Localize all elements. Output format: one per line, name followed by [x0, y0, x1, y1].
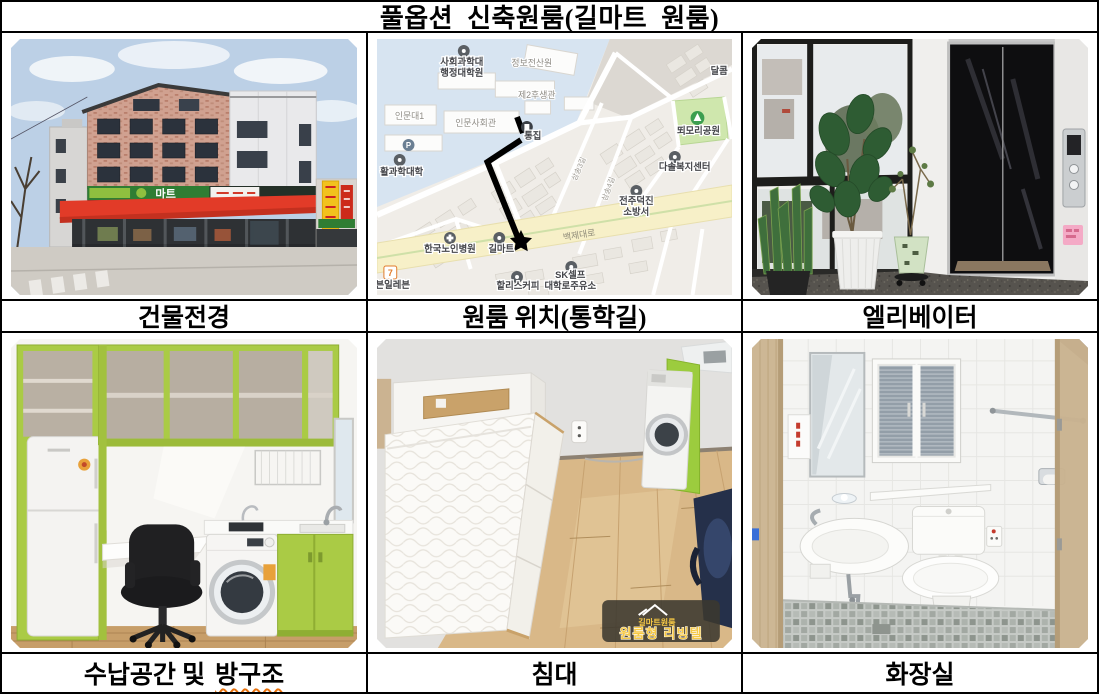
blue-tape — [752, 528, 759, 540]
call-panel — [1055, 39, 1088, 295]
label-gilmart: 길마트 — [488, 243, 514, 254]
svg-text:행정대학원: 행정대학원 — [440, 67, 483, 78]
caption-elevator: 엘리베이터 — [743, 301, 1097, 333]
label-humanities1: 인문대1 — [395, 111, 424, 121]
door-frame-right — [1055, 339, 1088, 648]
label-science-college: 활과학대학 — [380, 166, 423, 177]
cabinet-stile — [99, 345, 107, 640]
svg-text:7: 7 — [388, 268, 393, 278]
map-photo-cell: P 7 사회과학대 행정대학원 정보전산원 — [368, 33, 743, 301]
svg-text:소방서: 소방서 — [623, 206, 649, 217]
label-tongzip: 통집 — [524, 130, 541, 141]
white-wing — [230, 91, 317, 189]
bathroom-photo-cell — [743, 333, 1097, 654]
refrigerator — [27, 437, 102, 636]
elevator-photo — [752, 39, 1088, 295]
pavement — [11, 247, 357, 295]
title-word-1: 풀옵션 — [380, 2, 453, 33]
label-sk: SK셀프 — [555, 269, 586, 280]
washing-machine — [206, 534, 277, 636]
label-info-center: 정보전산원 — [511, 58, 552, 68]
caption-building: 건물전경 — [2, 301, 368, 333]
document-page: 풀옵션 신축원룸(길마트 원룸) — [0, 0, 1099, 694]
watermark-label: 원룸형 리빙텔 — [619, 626, 702, 641]
bed-photo-cell: 길마트원룸 원룸형 리빙텔 — [368, 333, 743, 654]
back-wall — [107, 447, 339, 531]
label-hospital: 한국노인병원 — [424, 243, 476, 254]
washing-machine — [642, 370, 693, 490]
title-word-2: 신축원룸(길마트 — [467, 2, 647, 33]
upper-shelves — [99, 345, 339, 447]
parking-icon: P — [406, 141, 412, 150]
title-word-3: 원룸) — [661, 2, 719, 33]
pink-sticker — [1063, 225, 1083, 245]
label-welfare-hall: 제2후생관 — [518, 90, 556, 100]
building-photo-cell: 마트 — [2, 33, 368, 301]
label-fire-station: 전주덕진 — [619, 195, 653, 206]
lower-green-cabinet — [278, 534, 353, 636]
bed-photo: 길마트원룸 원룸형 리빙텔 — [377, 339, 732, 648]
door-frame-left — [752, 339, 783, 648]
bathroom-photo — [752, 339, 1088, 648]
fire-hose-box — [788, 415, 810, 459]
mirror — [810, 353, 864, 477]
label-park: 뙤모리공원 — [677, 125, 720, 136]
map-photo: P 7 사회과학대 행정대학원 정보전산원 — [377, 39, 732, 295]
label-dalkom: 달콤 — [711, 65, 729, 76]
caption-bed: 침대 — [368, 654, 743, 692]
wall-cabinet — [872, 359, 960, 463]
storage-photo — [11, 339, 357, 648]
floor-drain — [872, 624, 890, 634]
svg-text:대학로주유소: 대학로주유소 — [544, 280, 596, 291]
listing-table: 풀옵션 신축원룸(길마트 원룸) — [0, 0, 1099, 694]
power-outlet — [572, 421, 587, 443]
document-title: 풀옵션 신축원룸(길마트 원룸) — [2, 2, 1097, 33]
watermark: 길마트원룸 원룸형 리빙텔 — [602, 600, 720, 642]
label-hollys: 할리스커피 — [496, 280, 539, 291]
elevator-door — [949, 39, 1055, 275]
elevator-photo-cell — [743, 33, 1097, 301]
building-photo: 마트 — [11, 39, 357, 295]
storefront — [72, 219, 316, 248]
caption-bathroom: 화장실 — [743, 654, 1097, 692]
label-seven-eleven: 븐일레븐 — [377, 279, 410, 290]
outlet — [987, 526, 1002, 546]
neighbor-building-banners — [316, 179, 357, 247]
storage-photo-cell — [2, 333, 368, 654]
label-grad-school: 사회과학대 — [440, 56, 483, 67]
caption-map: 원룸 위치(통학길) — [368, 301, 743, 333]
label-dasol: 다솔복지센터 — [659, 161, 711, 172]
caption-storage: 수납공간 및 방구조 — [2, 654, 368, 692]
label-humanities-hall: 인문사회관 — [455, 118, 496, 128]
